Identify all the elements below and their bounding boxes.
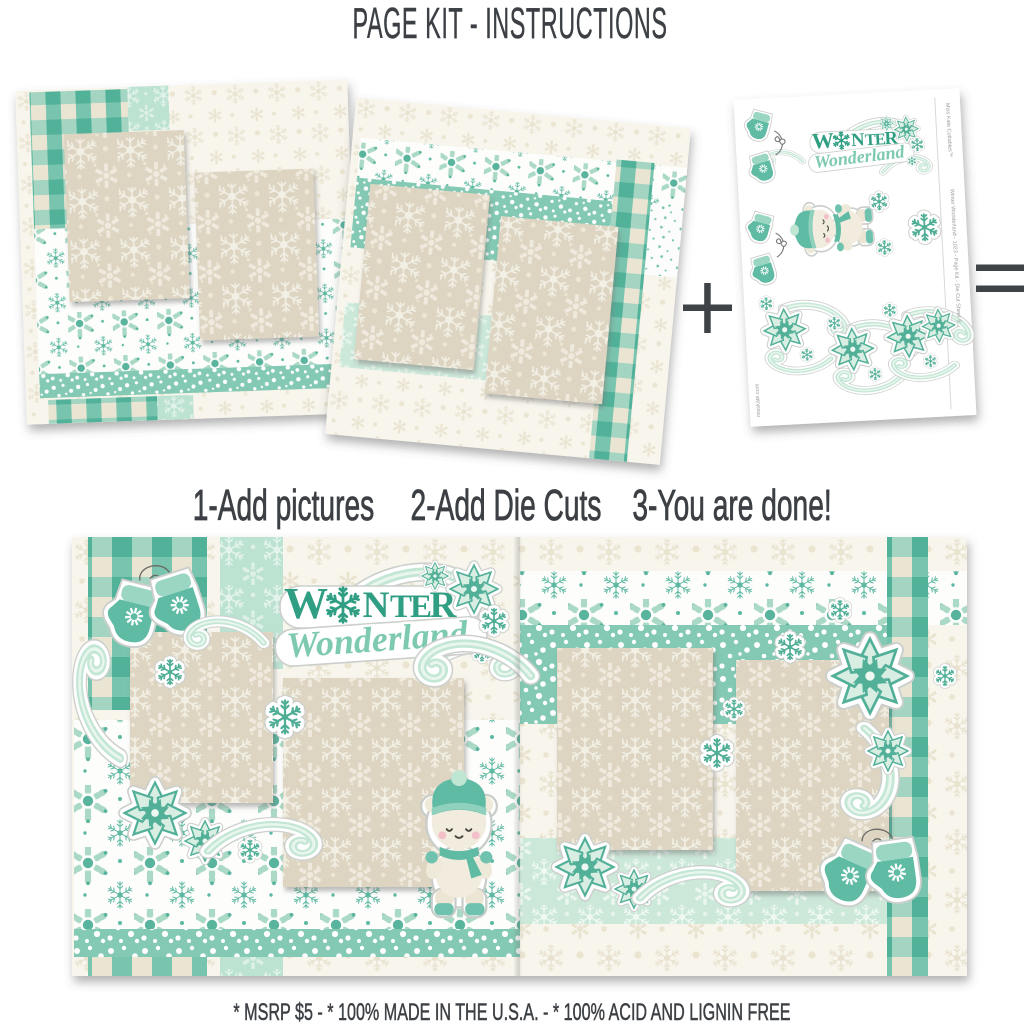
svg-text:2-Add Die Cuts: 2-Add Die Cuts [411, 481, 602, 530]
svg-text:PAGE KIT - INSTRUCTIONS: PAGE KIT - INSTRUCTIONS [353, 0, 668, 48]
svg-text:3-You are done!: 3-You are done! [632, 481, 831, 530]
svg-text:1-Add pictures: 1-Add pictures [193, 481, 374, 530]
svg-text:* MSRP $5 - * 100% MADE IN T: * MSRP $5 - * 100% MADE IN THE U.S.A. - … [233, 999, 790, 1024]
